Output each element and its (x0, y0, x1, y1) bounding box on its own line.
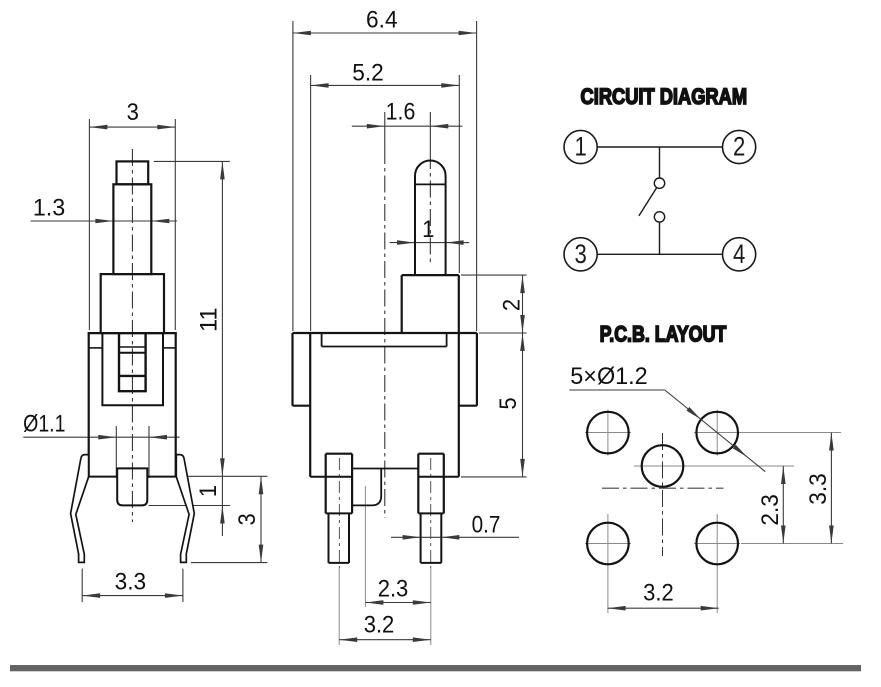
svg-text:5: 5 (494, 397, 521, 409)
svg-text:3.2: 3.2 (643, 579, 674, 606)
svg-text:1: 1 (194, 485, 221, 497)
svg-text:1: 1 (574, 133, 586, 163)
svg-text:2.3: 2.3 (378, 574, 409, 601)
svg-text:1.6: 1.6 (386, 97, 416, 124)
svg-text:11: 11 (194, 308, 221, 332)
svg-text:3.3: 3.3 (115, 567, 147, 594)
svg-text:5×Ø1.2: 5×Ø1.2 (570, 362, 647, 389)
svg-text:2.3: 2.3 (756, 494, 783, 526)
svg-text:5.2: 5.2 (352, 58, 384, 85)
svg-text:3.2: 3.2 (364, 610, 395, 637)
svg-text:1.3: 1.3 (33, 193, 65, 220)
svg-text:3: 3 (233, 513, 260, 525)
svg-text:1: 1 (422, 215, 434, 242)
svg-text:3: 3 (127, 98, 139, 125)
svg-text:Ø1.1: Ø1.1 (23, 409, 65, 436)
svg-text:P.C.B. LAYOUT: P.C.B. LAYOUT (600, 322, 727, 347)
svg-text:0.7: 0.7 (472, 510, 501, 537)
svg-text:3: 3 (574, 240, 586, 270)
svg-text:2: 2 (497, 299, 524, 311)
svg-text:4: 4 (733, 240, 745, 270)
svg-text:CIRCUIT DIAGRAM: CIRCUIT DIAGRAM (581, 84, 748, 109)
svg-text:3.3: 3.3 (804, 473, 831, 505)
svg-text:6.4: 6.4 (366, 5, 398, 32)
svg-text:2: 2 (733, 133, 745, 163)
